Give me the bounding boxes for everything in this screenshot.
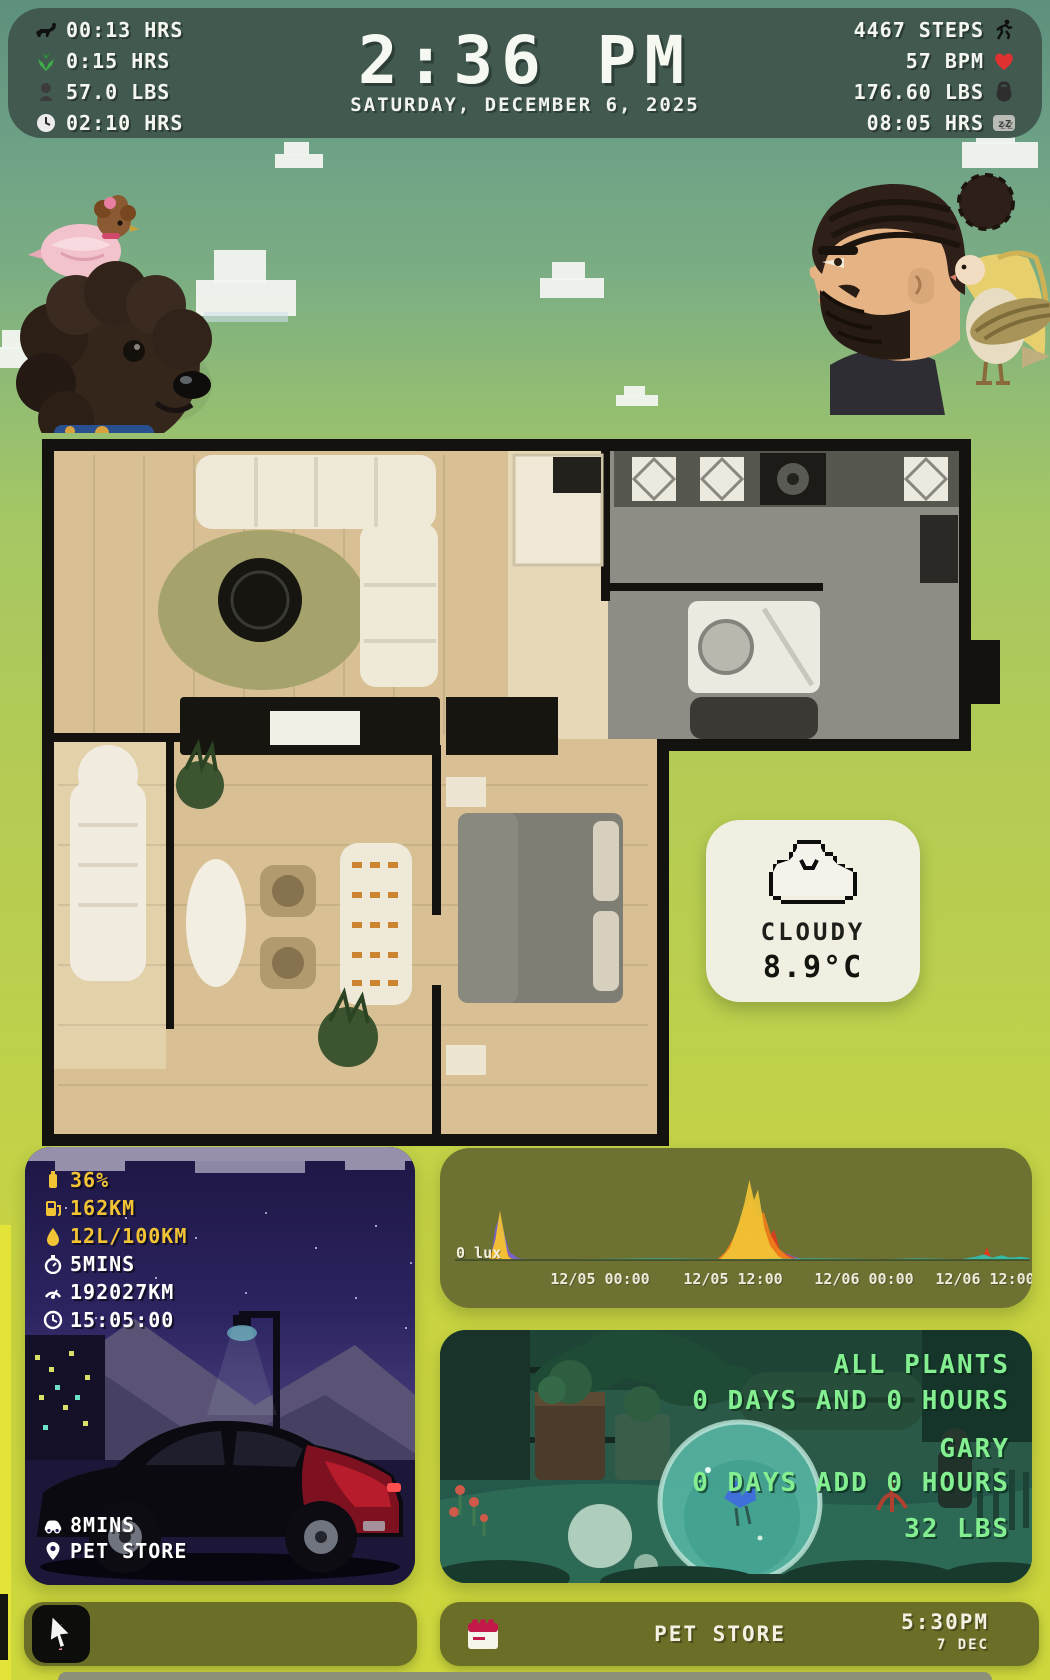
plant-pet-name: GARY [939, 1434, 1010, 1464]
stat-value: 08:05 HRS [867, 111, 984, 135]
battery-icon [43, 1170, 63, 1190]
event-title: PET STORE [590, 1622, 850, 1646]
plant-weight: 32 LBS [904, 1514, 1010, 1544]
harpy-avatar [950, 253, 1050, 383]
pillow [593, 821, 619, 901]
car-icon [43, 1515, 63, 1535]
stat-body-weight: 176.60 LBS [854, 80, 1016, 104]
car-destination: PET STORE [43, 1539, 187, 1563]
kettlebell-icon [992, 80, 1016, 104]
car-stat-consumption: 12L/100KM [43, 1224, 187, 1248]
terrarium-orb [660, 1422, 820, 1583]
cursor-play-icon [44, 1614, 78, 1654]
car-stat-time: 15:05:00 [43, 1308, 174, 1332]
status-bar: 00:13 HRS 0:15 HRS 57.0 LBS 02:10 HRS 2:… [8, 8, 1042, 138]
calendar-icon [464, 1615, 502, 1653]
stat-value: 4467 STEPS [854, 18, 984, 42]
edge-dark-decoration [0, 1594, 8, 1660]
plant-pet-value: 0 DAYS ADD 0 HOURS [692, 1468, 1010, 1498]
weather-card[interactable]: CLOUDY 8.9°C [706, 820, 920, 1002]
map-pin-icon [43, 1541, 63, 1561]
weather-temperature: 8.9°C [763, 950, 863, 985]
car-stat-value: 36% [70, 1168, 109, 1192]
media-tile[interactable] [24, 1602, 417, 1666]
fuel-pump-icon [43, 1198, 63, 1218]
nightstand [446, 1045, 486, 1075]
event-datetime: 5:30PM 7 DEC [901, 1610, 989, 1653]
car-stat-value: 12L/100KM [70, 1224, 187, 1248]
next-card-sliver [58, 1672, 992, 1680]
bench [690, 697, 818, 739]
car-stat-value: PET STORE [70, 1539, 187, 1563]
timer-icon [43, 1254, 63, 1274]
chart-baseline-label: 0 lux [456, 1244, 501, 1262]
event-time: 5:30PM [901, 1610, 989, 1634]
oval-table [186, 859, 246, 987]
car-walk-time: 8MINS [43, 1513, 135, 1537]
cloud-band [25, 1147, 415, 1161]
clock-icon [43, 1310, 63, 1330]
car-stat-value: 5MINS [70, 1252, 135, 1276]
cloud-band [345, 1161, 405, 1170]
runner-icon [992, 18, 1016, 42]
svg-text:zZ: zZ [998, 119, 1012, 130]
fuel-drop-icon [43, 1226, 63, 1246]
car-stat-value: 8MINS [70, 1513, 135, 1537]
chart-x-tick: 12/06 00:00 [814, 1270, 913, 1288]
car-stat-value: 162KM [70, 1196, 135, 1220]
odometer-icon [43, 1282, 63, 1302]
nightstand [446, 777, 486, 807]
chart-x-tick: 12/05 12:00 [683, 1270, 782, 1288]
sleep-icon: zZ [992, 111, 1016, 135]
cloud-band [195, 1161, 305, 1173]
cloud-icon [765, 836, 861, 910]
stat-value: 57 BPM [906, 49, 984, 73]
car-stat-battery: 36% [43, 1168, 109, 1192]
heart-icon [992, 49, 1016, 73]
car-stat-range: 162KM [43, 1196, 135, 1220]
calendar-tile[interactable]: PET STORE 5:30PM 7 DEC [440, 1602, 1039, 1666]
plants-all-value: 0 DAYS AND 0 HOURS [692, 1386, 1010, 1416]
pillow [593, 911, 619, 991]
weather-condition: CLOUDY [761, 918, 866, 946]
plant-card[interactable]: ALL PLANTS 0 DAYS AND 0 HOURS GARY 0 DAY… [440, 1330, 1032, 1583]
car-card[interactable]: 36% 162KM 12L/100KM 5MINS 192027KM 15:05… [25, 1147, 415, 1585]
dashboard-screen: 00:13 HRS 0:15 HRS 57.0 LBS 02:10 HRS 2:… [0, 0, 1050, 1680]
stat-value: 176.60 LBS [854, 80, 984, 104]
event-date: 7 DEC [901, 1637, 989, 1653]
man-and-harpy-avatar [760, 150, 1050, 415]
light-chart [455, 1154, 1030, 1268]
stat-steps: 4467 STEPS [854, 18, 1016, 42]
chart-x-tick: 12/05 00:00 [550, 1270, 649, 1288]
car-stat-value: 15:05:00 [70, 1308, 174, 1332]
chart-x-tick: 12/06 12:00 [935, 1270, 1032, 1288]
light-chart-card[interactable]: 0 lux 12/05 00:00 12/05 12:00 12/06 00:0… [440, 1148, 1032, 1308]
entry-nook [959, 640, 1000, 704]
stat-heart-rate: 57 BPM [906, 49, 1016, 73]
cloud-decoration [540, 262, 604, 298]
chaise-lounge [70, 781, 146, 981]
car-stat-duration: 5MINS [43, 1252, 135, 1276]
dog-avatar [16, 261, 212, 433]
cloud-decoration [616, 386, 658, 406]
media-play-button[interactable] [32, 1605, 90, 1663]
stat-sleep: 08:05 HRS zZ [867, 111, 1016, 135]
floorplan-image [48, 445, 1000, 1140]
dog-and-bird-avatar [6, 133, 246, 433]
car-stat-odometer: 192027KM [43, 1280, 174, 1304]
cloud-decoration [275, 142, 323, 168]
plants-all-label: ALL PLANTS [833, 1350, 1010, 1380]
car-stat-value: 192027KM [70, 1280, 174, 1304]
